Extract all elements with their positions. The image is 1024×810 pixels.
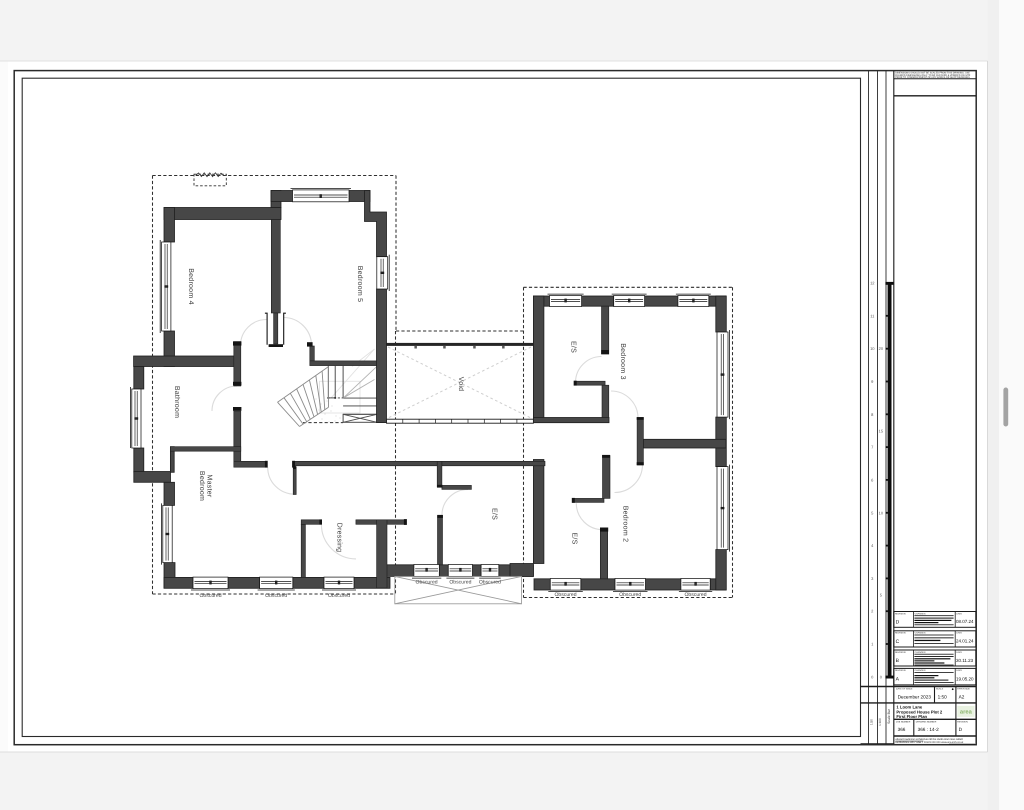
svg-text:hertfordshire WD7 8AB t: hertfordshire WD7 8AB t: 01923 000 000 w… [895, 741, 964, 744]
svg-text:First Floor Plan: First Floor Plan [896, 714, 927, 719]
svg-text:Obscured: Obscured [265, 593, 287, 599]
svg-text:REVISION: REVISION [957, 721, 968, 724]
svg-text:08.07.24: 08.07.24 [956, 619, 974, 624]
svg-text:Scale Bar: Scale Bar [887, 708, 891, 724]
svg-text:Obscured: Obscured [684, 592, 706, 598]
svg-text:Bedroom 5: Bedroom 5 [356, 266, 364, 303]
svg-text:JOB NUMBER: JOB NUMBER [896, 721, 911, 724]
svg-text:E/S: E/S [570, 341, 578, 353]
svg-text:DATE: DATE [956, 651, 962, 654]
svg-text:24.01.24: 24.01.24 [956, 639, 974, 644]
svg-text:C: C [896, 639, 900, 645]
svg-text:15: 15 [879, 428, 884, 433]
svg-text:1:100: 1:100 [878, 718, 882, 726]
svg-text:REVISION: REVISION [895, 669, 906, 672]
svg-text:CHANGES: CHANGES [915, 651, 926, 654]
svg-text:30.11.23: 30.11.23 [956, 658, 974, 663]
svg-text:Obscured: Obscured [479, 579, 501, 585]
svg-text:366: 366 [898, 727, 906, 732]
svg-text:CHANGES: CHANGES [915, 632, 926, 635]
svg-text:366 : 14-2: 366 : 14-2 [918, 727, 940, 732]
svg-text:E/S: E/S [571, 532, 579, 544]
svg-text:1:50: 1:50 [938, 694, 948, 699]
svg-text:PRIOR TO COMMENCEMENT OF ANY W: PRIOR TO COMMENCEMENT OF ANY WORKS OR SH… [895, 76, 970, 79]
svg-text:Master: Master [206, 475, 213, 498]
svg-text:D: D [896, 619, 900, 625]
svg-text:December 2023: December 2023 [898, 694, 932, 699]
svg-text:DATE: DATE [956, 669, 962, 672]
svg-text:PAPER SIZE: PAPER SIZE [957, 688, 970, 691]
svg-text:REVISION: REVISION [895, 632, 906, 635]
svg-text:Dressing: Dressing [336, 523, 344, 553]
svg-text:Obscured: Obscured [328, 593, 350, 599]
svg-text:19.05.20: 19.05.20 [956, 676, 974, 681]
svg-text:Obscured: Obscured [619, 592, 641, 598]
svg-text:20: 20 [879, 346, 884, 351]
svg-text:REVISION: REVISION [895, 651, 906, 654]
svg-text:Obscured: Obscured [199, 593, 221, 599]
svg-text:Bedroom 3: Bedroom 3 [619, 343, 627, 380]
svg-text:REVISION: REVISION [895, 612, 906, 615]
svg-text:Obscured: Obscured [554, 592, 576, 598]
svg-text:10: 10 [870, 346, 875, 351]
svg-text:DRAWING NUMBER: DRAWING NUMBER [916, 721, 937, 724]
svg-text:12: 12 [870, 281, 875, 286]
svg-text:DATE: DATE [956, 612, 962, 615]
svg-text:CHANGES: CHANGES [915, 669, 926, 672]
svg-text:Void: Void [457, 377, 465, 392]
svg-text:Bedroom 4: Bedroom 4 [187, 268, 195, 305]
svg-text:A2: A2 [959, 694, 965, 699]
svg-text:DATE OF ISSUE: DATE OF ISSUE [896, 688, 913, 691]
svg-text:E/S: E/S [491, 508, 499, 520]
svg-text:Obscured: Obscured [449, 579, 471, 585]
svg-text:area: area [960, 710, 973, 716]
svg-text:CHANGES: CHANGES [915, 612, 926, 615]
svg-text:SCALE: SCALE [936, 688, 944, 691]
svg-text:Bedroom 2: Bedroom 2 [622, 506, 630, 543]
svg-text:Bedroom: Bedroom [198, 471, 206, 501]
svg-text:Bathroom: Bathroom [173, 386, 181, 418]
svg-text:DATE: DATE [956, 632, 962, 635]
svg-text:10: 10 [879, 510, 884, 515]
svg-text:Obscured: Obscured [416, 579, 438, 585]
svg-text:1:50: 1:50 [870, 719, 874, 725]
